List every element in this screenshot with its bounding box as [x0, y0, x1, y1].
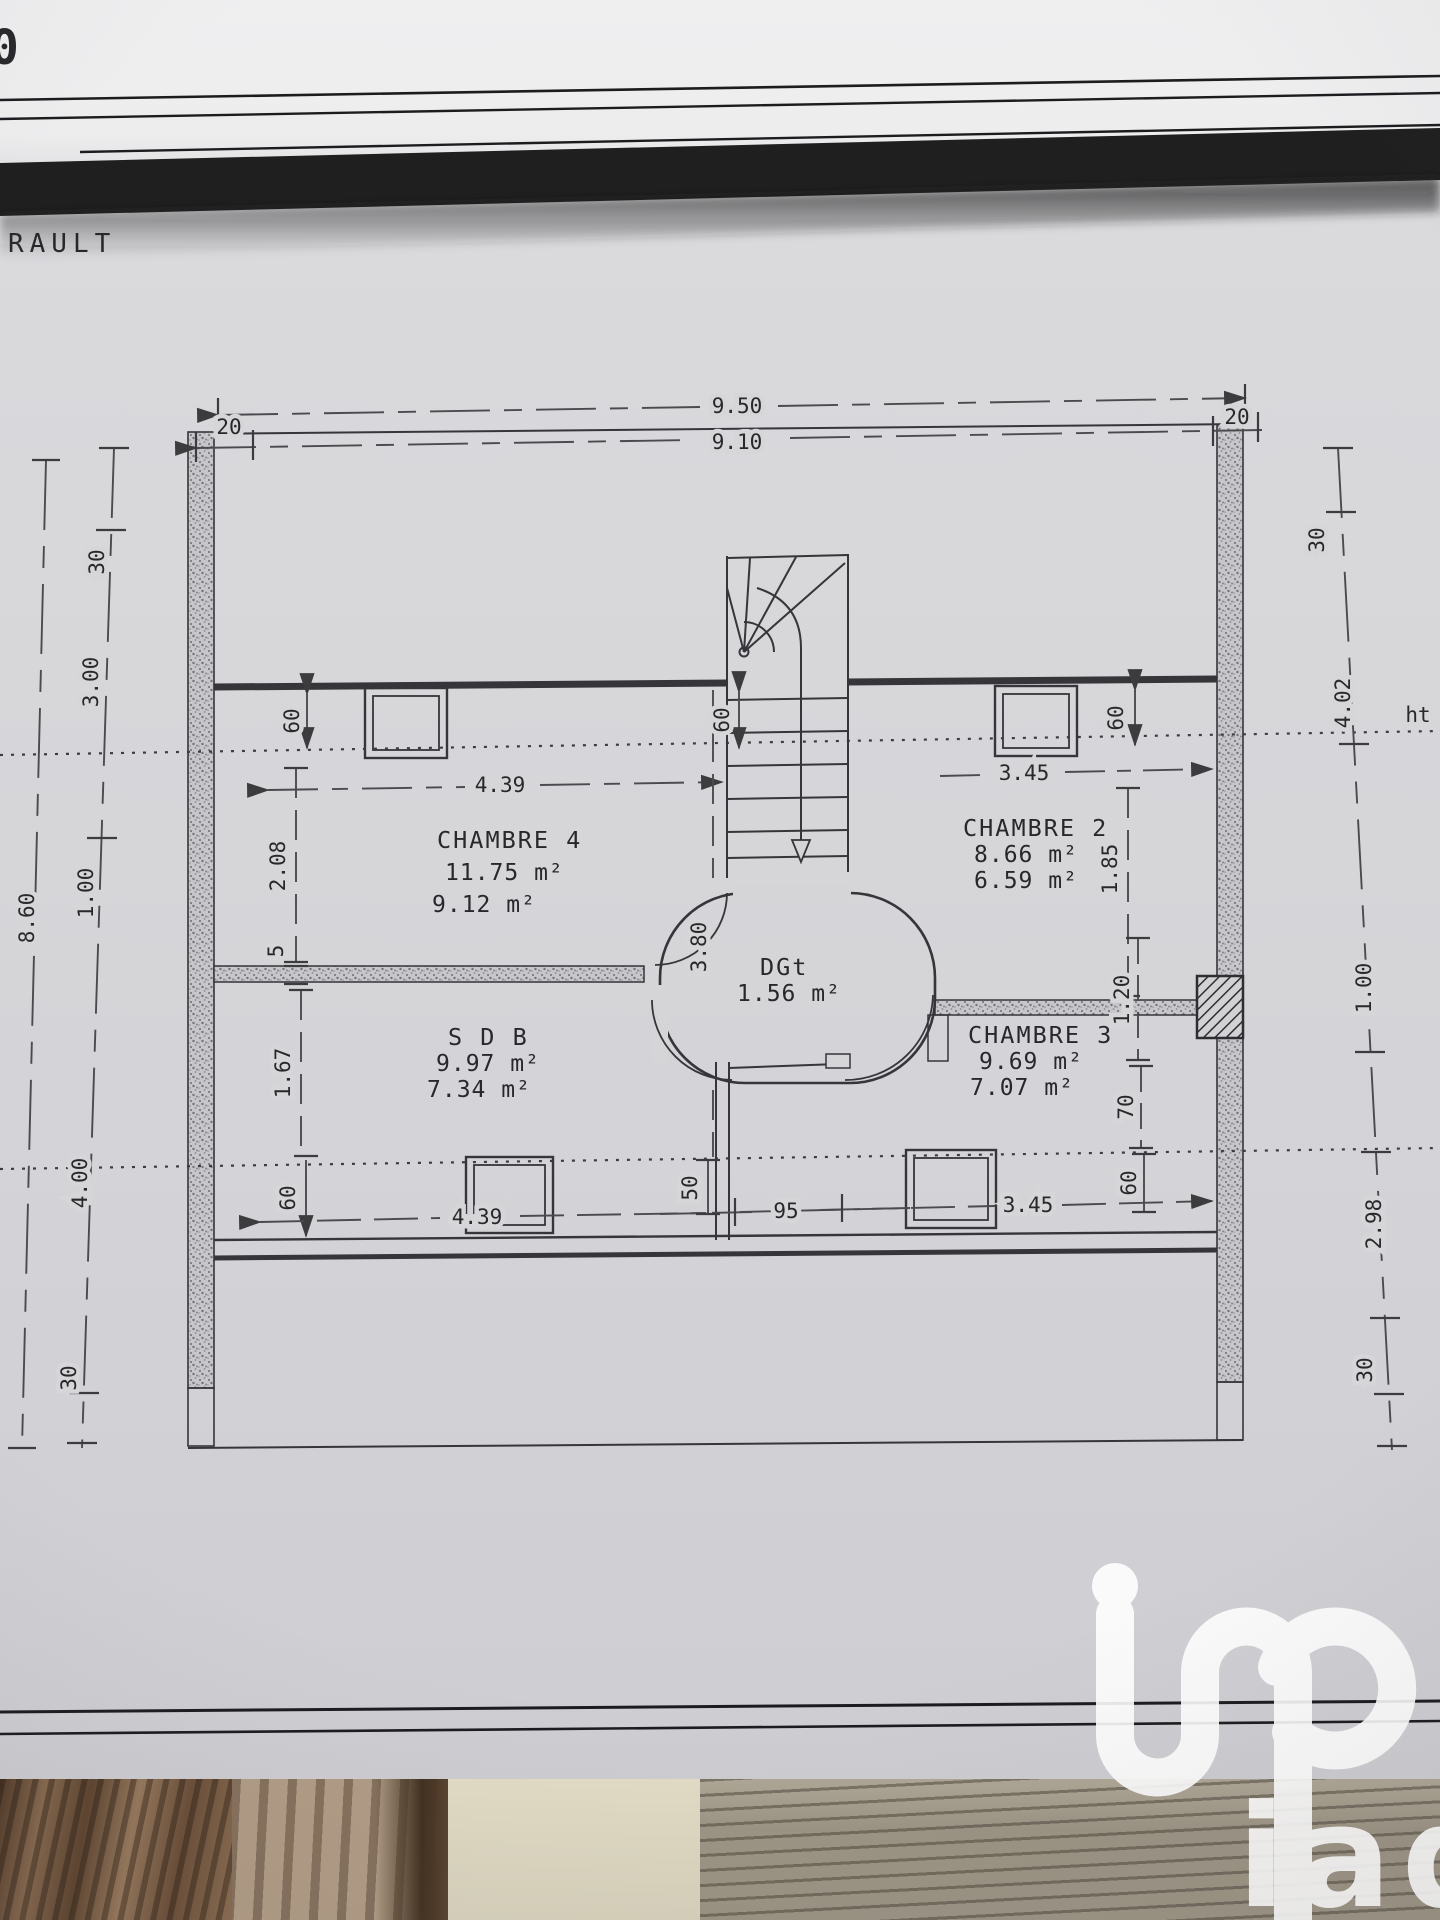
iad-watermark: iad	[0, 0, 1440, 1920]
iad-brand-text: iad	[1237, 1775, 1440, 1920]
scanned-floor-plan-page: 0 RAULT	[0, 0, 1440, 1920]
